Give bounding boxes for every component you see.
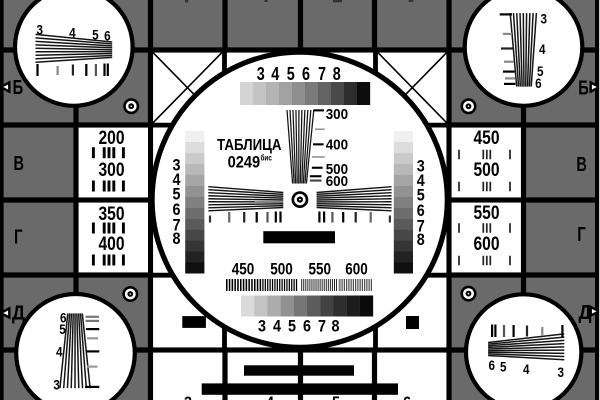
svg-text:ТАБЛИЦА: ТАБЛИЦА	[217, 137, 282, 154]
svg-text:600: 600	[326, 174, 348, 190]
svg-text:450: 450	[232, 259, 255, 278]
svg-text:3: 3	[184, 393, 192, 400]
svg-text:4: 4	[271, 64, 279, 84]
svg-text:Б: Б	[13, 76, 24, 99]
svg-text:3: 3	[557, 364, 564, 380]
svg-text:200: 200	[99, 127, 125, 149]
svg-text:400: 400	[99, 233, 125, 255]
svg-text:600: 600	[474, 233, 500, 255]
svg-text:5: 5	[288, 317, 296, 336]
svg-text:300: 300	[326, 107, 348, 123]
svg-text:7: 7	[318, 317, 326, 336]
svg-text:6: 6	[403, 393, 411, 400]
svg-text:550: 550	[474, 202, 500, 224]
svg-text:6: 6	[104, 27, 111, 43]
svg-text:Г: Г	[577, 223, 586, 246]
svg-text:5: 5	[332, 393, 340, 400]
svg-text:Б: Б	[578, 77, 589, 100]
svg-text:Г: Г	[14, 226, 23, 249]
svg-text:бис: бис	[261, 153, 273, 163]
svg-text:4: 4	[266, 393, 274, 400]
svg-text:8: 8	[417, 230, 425, 249]
svg-text:550: 550	[309, 259, 332, 278]
svg-text:3: 3	[53, 377, 60, 393]
svg-text:5: 5	[500, 358, 507, 374]
svg-text:Д: Д	[12, 302, 25, 325]
svg-text:4: 4	[539, 41, 546, 57]
svg-text:500: 500	[474, 159, 500, 181]
svg-text:4: 4	[69, 25, 76, 41]
svg-text:6: 6	[535, 75, 542, 91]
svg-text:5: 5	[92, 26, 99, 42]
svg-text:3: 3	[37, 22, 44, 38]
svg-text:500: 500	[270, 259, 293, 278]
svg-text:8: 8	[173, 229, 181, 248]
svg-text:4: 4	[273, 317, 281, 336]
svg-text:3: 3	[540, 11, 547, 27]
svg-text:8: 8	[332, 317, 340, 336]
svg-text:450: 450	[474, 127, 500, 149]
svg-text:300: 300	[99, 159, 125, 181]
svg-text:7: 7	[318, 64, 326, 84]
svg-text:3: 3	[257, 64, 265, 84]
svg-text:6: 6	[488, 357, 495, 373]
svg-text:3: 3	[258, 317, 266, 336]
svg-text:4: 4	[523, 361, 530, 377]
svg-text:350: 350	[99, 203, 125, 225]
svg-text:6: 6	[303, 317, 311, 336]
svg-text:400: 400	[326, 138, 348, 154]
svg-text:В: В	[14, 152, 25, 175]
svg-text:8: 8	[333, 64, 341, 84]
svg-text:0249: 0249	[228, 153, 261, 172]
svg-text:600: 600	[345, 259, 368, 278]
svg-text:В: В	[576, 153, 587, 176]
svg-text:4: 4	[56, 344, 63, 360]
svg-text:6: 6	[302, 64, 310, 84]
svg-text:5: 5	[287, 64, 295, 84]
svg-text:5: 5	[59, 321, 66, 337]
